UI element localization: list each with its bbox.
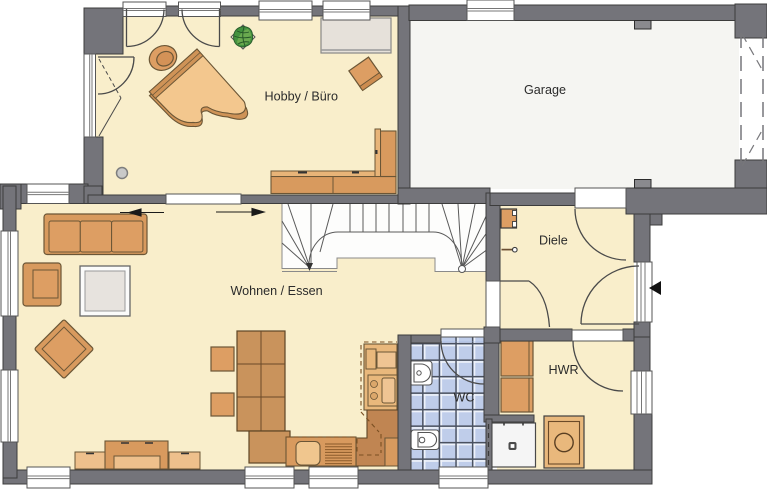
svg-text:Garage: Garage [524, 83, 566, 97]
svg-text:Diele: Diele [539, 234, 568, 248]
svg-text:Wohnen / Essen: Wohnen / Essen [231, 284, 323, 298]
svg-text:Hobby / Büro: Hobby / Büro [265, 90, 339, 104]
svg-text:HWR: HWR [549, 363, 579, 377]
svg-text:WC: WC [454, 391, 475, 405]
